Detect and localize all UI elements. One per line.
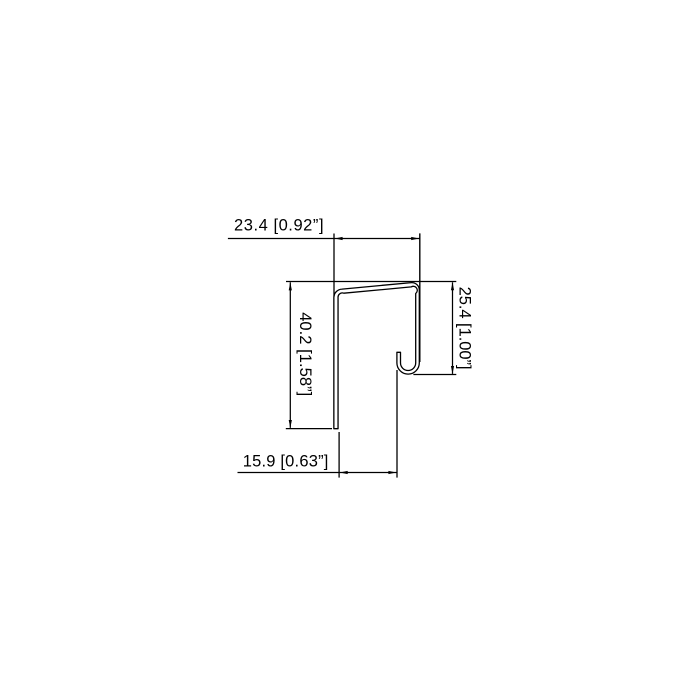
svg-text:15.9 [0.63”]: 15.9 [0.63”] (243, 453, 329, 471)
svg-text:23.4 [0.92”]: 23.4 [0.92”] (234, 217, 324, 235)
svg-text:25.4 [1.00”]: 25.4 [1.00”] (456, 287, 474, 370)
svg-text:40.2 [1.58”]: 40.2 [1.58”] (296, 312, 314, 396)
